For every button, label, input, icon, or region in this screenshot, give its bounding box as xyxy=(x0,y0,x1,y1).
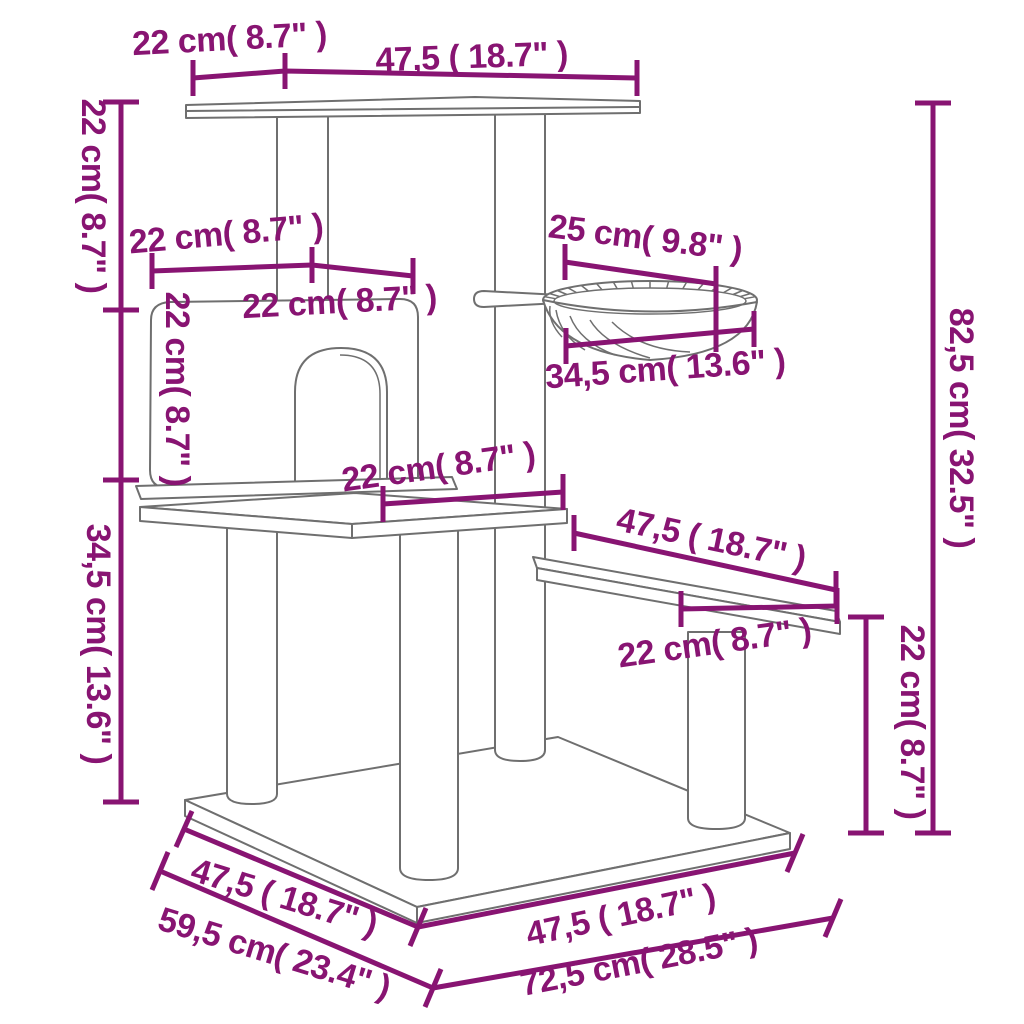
support-post-left xyxy=(227,520,277,804)
support-post-front xyxy=(400,528,458,880)
label-hammock-depth: 25 cm( 9.8" ) xyxy=(546,207,744,268)
label-house-front-height: 22 cm( 8.7" ) xyxy=(158,292,196,487)
label-top-width: 47,5 ( 18.7" ) xyxy=(375,35,569,80)
top-platform xyxy=(186,97,640,118)
label-step-platform-width: 47,5 ( 18.7" ) xyxy=(613,501,809,578)
label-hammock-width: 34,5 cm( 13.6" ) xyxy=(544,342,787,397)
label-middle-height: 34,5 cm( 13.6" ) xyxy=(79,524,117,765)
label-total-height: 82,5 cm( 32.5" ) xyxy=(942,308,980,549)
label-upper-height: 22 cm( 8.7" ) xyxy=(74,99,112,294)
dim-line-step-depth xyxy=(681,606,837,609)
label-step-height: 22 cm( 8.7" ) xyxy=(893,625,931,820)
cat-tree-dimension-diagram: 22 cm( 8.7" ) 47,5 ( 18.7" ) 22 cm( 8.7"… xyxy=(0,0,1024,1024)
label-top-depth: 22 cm( 8.7" ) xyxy=(131,15,328,63)
center-post xyxy=(495,108,545,761)
diagram-canvas: 22 cm( 8.7" ) 47,5 ( 18.7" ) 22 cm( 8.7"… xyxy=(0,0,1024,1024)
